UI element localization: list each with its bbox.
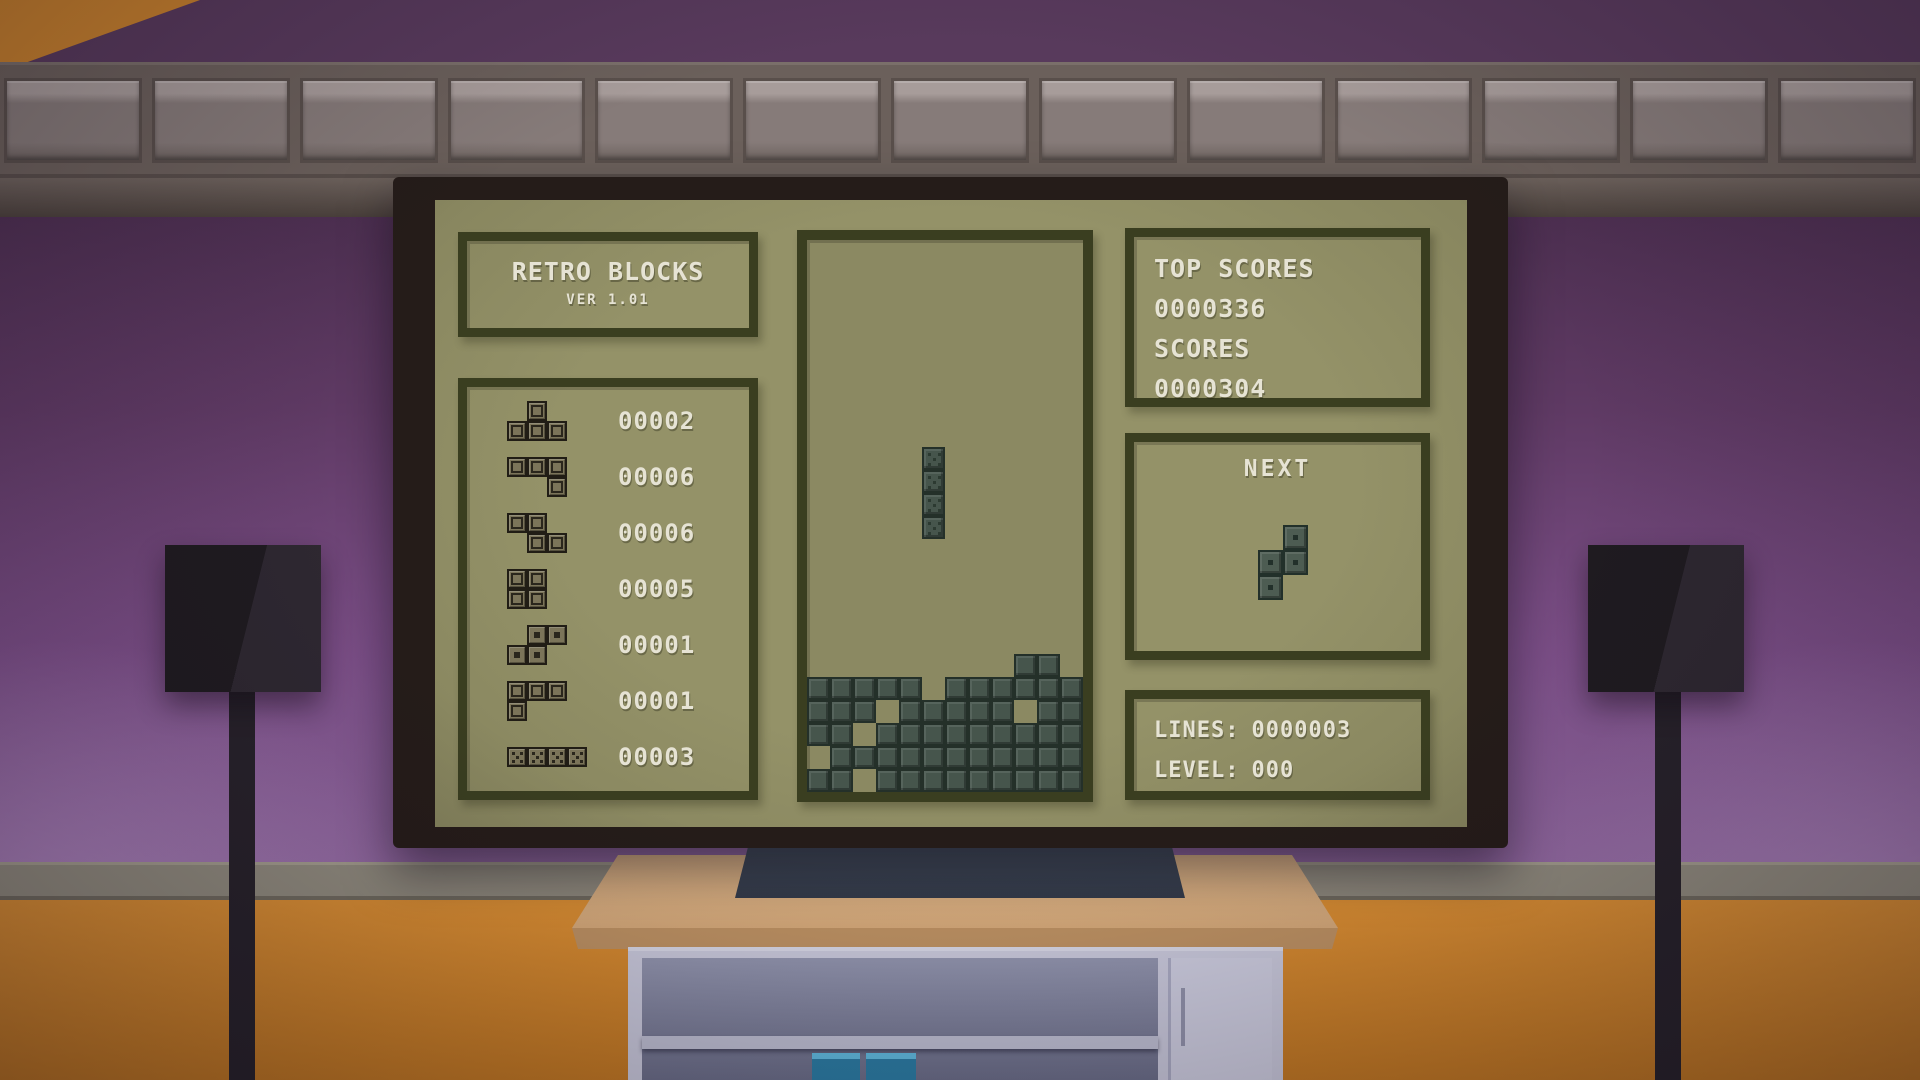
lines-label: LINES: xyxy=(1154,718,1239,743)
block xyxy=(507,457,527,477)
cabinet-door xyxy=(4,78,142,163)
stack-block xyxy=(853,677,876,700)
game-console xyxy=(812,1053,860,1080)
stack-block xyxy=(1060,677,1083,700)
block xyxy=(507,421,527,441)
cabinet-door xyxy=(1187,78,1325,163)
stack-block xyxy=(1060,746,1083,769)
cabinet-door xyxy=(743,78,881,163)
I-piece-icon xyxy=(497,734,602,780)
stack-block xyxy=(1037,769,1060,792)
stack-block xyxy=(945,769,968,792)
block xyxy=(527,513,547,533)
ceiling xyxy=(0,0,1920,62)
cabinet-door xyxy=(152,78,290,163)
block xyxy=(507,645,527,665)
stack-block xyxy=(830,700,853,723)
stack-block xyxy=(991,746,1014,769)
block xyxy=(547,477,567,497)
stack-block xyxy=(876,769,899,792)
stack-block xyxy=(991,769,1014,792)
Z-piece-icon xyxy=(497,510,602,556)
stack-block xyxy=(807,769,830,792)
block xyxy=(527,589,547,609)
scores-panel: TOP SCORES 0000336 SCORES 0000304 xyxy=(1125,228,1430,407)
falling-piece-block xyxy=(922,493,945,516)
S-piece-icon xyxy=(497,622,602,668)
block xyxy=(547,533,567,553)
tv-stand-cabinet xyxy=(628,947,1283,1080)
stack-block xyxy=(922,700,945,723)
lines-value: 0000003 xyxy=(1251,718,1351,743)
stack-block xyxy=(807,677,830,700)
piece-count: 00001 xyxy=(618,631,695,659)
J-piece-icon xyxy=(497,454,602,500)
next-label: NEXT xyxy=(1134,456,1421,482)
stack-block xyxy=(945,746,968,769)
block xyxy=(547,421,567,441)
right-speaker xyxy=(1588,545,1744,692)
block xyxy=(527,645,547,665)
stack-block xyxy=(807,700,830,723)
door-handle xyxy=(1181,988,1185,1046)
stack-block xyxy=(899,746,922,769)
piece-count: 00002 xyxy=(618,407,695,435)
block xyxy=(507,589,527,609)
cabinet-door xyxy=(595,78,733,163)
stack-block xyxy=(1060,700,1083,723)
block xyxy=(1258,550,1283,575)
piece-count: 00003 xyxy=(618,743,695,771)
cabinet-door xyxy=(1778,78,1916,163)
stack-block xyxy=(1060,723,1083,746)
cabinet-door xyxy=(891,78,1029,163)
stack-block xyxy=(945,723,968,746)
level-value: 000 xyxy=(1251,758,1294,783)
stack-block xyxy=(922,746,945,769)
block xyxy=(507,701,527,721)
living-room-scene: RETRO BLOCKS VER 1.01 000020000600006000… xyxy=(0,0,1920,1080)
stack-block xyxy=(922,723,945,746)
stack-block xyxy=(945,700,968,723)
stack-block xyxy=(876,723,899,746)
stack-block xyxy=(876,677,899,700)
piece-statistics-panel: 00002000060000600005000010000100003 xyxy=(458,378,758,800)
block xyxy=(547,625,567,645)
stack-block xyxy=(1037,746,1060,769)
game-console xyxy=(866,1053,916,1080)
tv-stand-door xyxy=(1168,958,1272,1080)
block xyxy=(507,747,527,767)
stack-block xyxy=(1014,769,1037,792)
block xyxy=(527,533,547,553)
falling-piece-block xyxy=(922,516,945,539)
falling-piece-block xyxy=(922,470,945,493)
cabinet-door xyxy=(448,78,586,163)
lines-level-panel: LINES:0000003 LEVEL:000 xyxy=(1125,690,1430,800)
cabinet-door xyxy=(1039,78,1177,163)
top-score-value: 0000336 xyxy=(1154,289,1421,329)
shelf-divider xyxy=(642,1036,1158,1049)
stack-block xyxy=(1037,677,1060,700)
block xyxy=(527,569,547,589)
stack-block xyxy=(1014,723,1037,746)
game-screen: RETRO BLOCKS VER 1.01 000020000600006000… xyxy=(435,200,1467,827)
block xyxy=(507,513,527,533)
stack-block xyxy=(1014,746,1037,769)
block xyxy=(547,747,567,767)
next-piece-panel: NEXT xyxy=(1125,433,1430,660)
game-version: VER 1.01 xyxy=(467,292,749,308)
stack-block xyxy=(1037,723,1060,746)
block xyxy=(527,625,547,645)
piece-count: 00006 xyxy=(618,519,695,547)
tv-base-stand xyxy=(735,845,1185,898)
block xyxy=(1258,575,1283,600)
block xyxy=(547,681,567,701)
stack-block xyxy=(899,700,922,723)
stack-block xyxy=(1014,654,1037,677)
cabinet-door xyxy=(1335,78,1473,163)
stat-row-L: 00001 xyxy=(467,677,749,725)
stack-block xyxy=(1014,677,1037,700)
stack-block xyxy=(876,746,899,769)
stack-block xyxy=(922,769,945,792)
right-speaker-pole xyxy=(1655,690,1681,1080)
stat-row-Z: 00006 xyxy=(467,509,749,557)
stack-block xyxy=(968,677,991,700)
stack-block xyxy=(991,700,1014,723)
L-piece-icon xyxy=(497,678,602,724)
stat-row-O: 00005 xyxy=(467,565,749,613)
stack-block xyxy=(899,677,922,700)
level-label: LEVEL: xyxy=(1154,758,1239,783)
next-piece-preview xyxy=(1258,525,1308,600)
stack-block xyxy=(899,723,922,746)
block xyxy=(527,401,547,421)
stack-block xyxy=(853,700,876,723)
stack-block xyxy=(991,723,1014,746)
left-speaker-pole xyxy=(229,690,255,1080)
stack-block xyxy=(968,723,991,746)
left-speaker xyxy=(165,545,321,692)
block xyxy=(507,681,527,701)
piece-count: 00005 xyxy=(618,575,695,603)
stack-block xyxy=(830,677,853,700)
stack-block xyxy=(945,677,968,700)
playfield-grid xyxy=(807,240,1083,792)
T-piece-icon xyxy=(497,398,602,444)
stack-block xyxy=(968,700,991,723)
block xyxy=(527,457,547,477)
cabinet-door xyxy=(1482,78,1620,163)
block xyxy=(527,747,547,767)
tv-frame: RETRO BLOCKS VER 1.01 000020000600006000… xyxy=(393,177,1508,848)
stat-row-S: 00001 xyxy=(467,621,749,669)
stack-block xyxy=(830,723,853,746)
scores-label: SCORES xyxy=(1154,329,1421,369)
block xyxy=(547,457,567,477)
stat-row-J: 00006 xyxy=(467,453,749,501)
game-title: RETRO BLOCKS xyxy=(467,257,749,286)
block xyxy=(527,421,547,441)
stack-block xyxy=(853,746,876,769)
tv-stand-table-edge xyxy=(570,928,1340,949)
falling-piece-block xyxy=(922,447,945,470)
stack-block xyxy=(1037,700,1060,723)
stack-block xyxy=(991,677,1014,700)
stack-block xyxy=(807,723,830,746)
score-value: 0000304 xyxy=(1154,369,1421,409)
stack-block xyxy=(1060,769,1083,792)
stack-block xyxy=(830,769,853,792)
cabinet-door xyxy=(300,78,438,163)
tv-stand-open-shelf xyxy=(642,958,1158,1080)
block xyxy=(1283,525,1308,550)
stack-block xyxy=(1037,654,1060,677)
stack-block xyxy=(968,746,991,769)
stack-block xyxy=(830,746,853,769)
piece-count: 00006 xyxy=(618,463,695,491)
stat-row-T: 00002 xyxy=(467,397,749,445)
block xyxy=(527,681,547,701)
block xyxy=(1283,550,1308,575)
title-panel: RETRO BLOCKS VER 1.01 xyxy=(458,232,758,337)
O-piece-icon xyxy=(497,566,602,612)
block xyxy=(567,747,587,767)
stack-block xyxy=(968,769,991,792)
stat-row-I: 00003 xyxy=(467,733,749,781)
piece-count: 00001 xyxy=(618,687,695,715)
cabinet-door xyxy=(1630,78,1768,163)
block xyxy=(507,569,527,589)
wall-cabinet-row xyxy=(0,62,1920,178)
stack-block xyxy=(899,769,922,792)
playfield-panel xyxy=(797,230,1093,802)
top-scores-label: TOP SCORES xyxy=(1154,249,1421,289)
